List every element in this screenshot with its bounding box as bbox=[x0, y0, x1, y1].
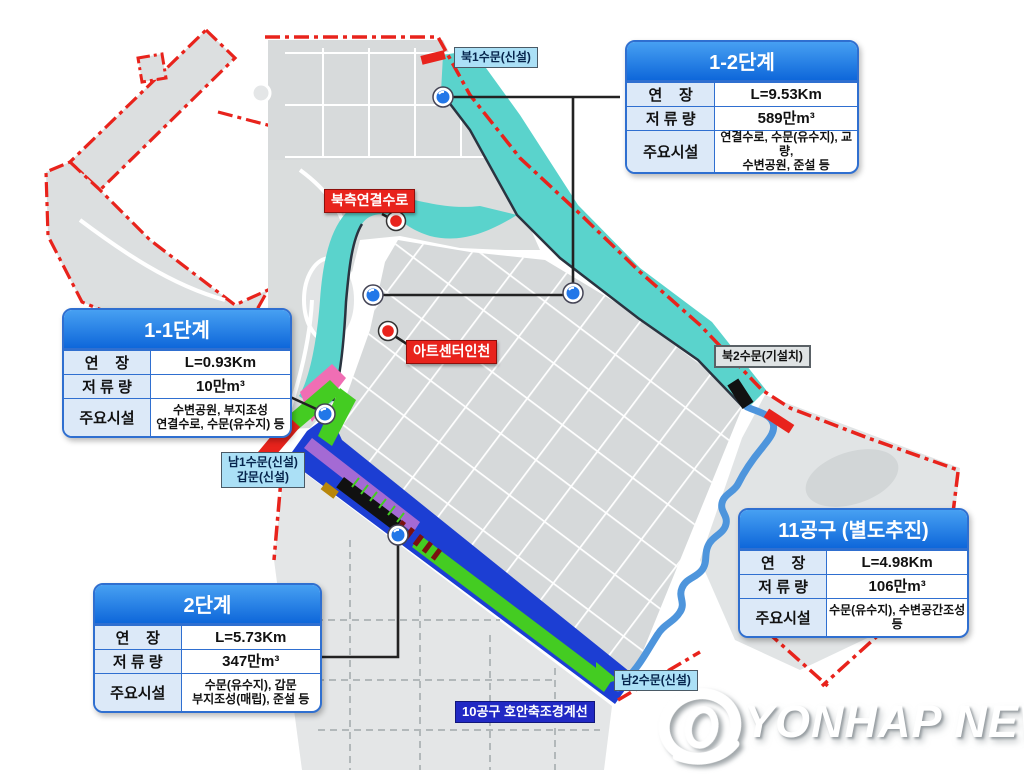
table-phase-2: 2단계 연 장 L=5.73Km 저 류 량 347만m³ 주요시설 수문(유수… bbox=[93, 583, 322, 713]
red-marker-north-channel bbox=[387, 212, 406, 231]
row-value: L=0.93Km bbox=[151, 351, 290, 374]
blue-marker-west bbox=[363, 285, 383, 305]
table-phase-1-2-title: 1-2단계 bbox=[627, 42, 857, 82]
row-value: 10만m³ bbox=[151, 375, 290, 398]
row-label: 저 류 량 bbox=[64, 375, 151, 398]
row-label: 연 장 bbox=[95, 626, 182, 649]
row-value: 수변공원, 부지조성 연결수로, 수문(유수지) 등 bbox=[151, 399, 290, 436]
row-value: 수문(유수지), 갑문 부지조성(매립), 준설 등 bbox=[182, 674, 321, 711]
row-label: 주요시설 bbox=[740, 599, 827, 636]
yonhap-watermark-text: YONHAP NEWS bbox=[744, 696, 1024, 748]
row-value: 연결수로, 수문(유수지), 교량, 수변공원, 준설 등 bbox=[715, 131, 857, 172]
table-phase-2-title: 2단계 bbox=[95, 585, 320, 625]
label-north-gate2: 북2수문(기설치) bbox=[714, 345, 811, 368]
row-label: 주요시설 bbox=[95, 674, 182, 711]
table-district-11: 11공구 (별도추진) 연 장 L=4.98Km 저 류 량 106만m³ 주요… bbox=[738, 508, 969, 638]
table-row: 저 류 량 589만m³ bbox=[627, 106, 857, 130]
row-label: 주요시설 bbox=[627, 131, 715, 172]
blue-marker-north1 bbox=[433, 87, 453, 107]
news-graphic-canvas: 1-2단계 연 장 L=9.53Km 저 류 량 589만m³ 주요시설 연결수… bbox=[0, 0, 1024, 777]
label-south-gate1: 남1수문(신설) 갑문(신설) bbox=[221, 452, 305, 488]
row-value: 589만m³ bbox=[715, 107, 857, 130]
row-value: 수문(유수지), 수변공간조성 등 bbox=[827, 599, 967, 636]
row-label: 연 장 bbox=[740, 551, 827, 574]
row-label: 저 류 량 bbox=[740, 575, 827, 598]
row-value: L=4.98Km bbox=[827, 551, 967, 574]
table-district-11-title: 11공구 (별도추진) bbox=[740, 510, 967, 550]
blue-marker-east bbox=[563, 283, 583, 303]
label-art-center: 아트센터인천 bbox=[406, 340, 497, 364]
row-value: L=9.53Km bbox=[715, 83, 857, 106]
table-phase-1-2: 1-2단계 연 장 L=9.53Km 저 류 량 589만m³ 주요시설 연결수… bbox=[625, 40, 859, 174]
table-row: 주요시설 수문(유수지), 수변공간조성 등 bbox=[740, 598, 967, 636]
row-label: 주요시설 bbox=[64, 399, 151, 436]
row-label: 연 장 bbox=[627, 83, 715, 106]
label-north-gate1: 북1수문(신설) bbox=[454, 47, 538, 68]
table-row: 저 류 량 347만m³ bbox=[95, 649, 320, 673]
blue-marker-junction bbox=[315, 404, 335, 424]
label-north-channel: 북측연결수로 bbox=[324, 189, 415, 213]
yonhap-watermark: YONHAP NEWS bbox=[648, 678, 1024, 777]
label-district10-boundary: 10공구 호안축조경계선 bbox=[455, 701, 595, 723]
table-row: 주요시설 연결수로, 수문(유수지), 교량, 수변공원, 준설 등 bbox=[627, 130, 857, 172]
table-row: 연 장 L=0.93Km bbox=[64, 350, 290, 374]
table-phase-1-1: 1-1단계 연 장 L=0.93Km 저 류 량 10만m³ 주요시설 수변공원… bbox=[62, 308, 292, 438]
table-row: 저 류 량 10만m³ bbox=[64, 374, 290, 398]
table-row: 주요시설 수문(유수지), 갑문 부지조성(매립), 준설 등 bbox=[95, 673, 320, 711]
row-value: 347만m³ bbox=[182, 650, 321, 673]
row-label: 저 류 량 bbox=[627, 107, 715, 130]
table-row: 연 장 L=4.98Km bbox=[740, 550, 967, 574]
row-value: L=5.73Km bbox=[182, 626, 321, 649]
blue-marker-canal bbox=[388, 525, 408, 545]
table-row: 저 류 량 106만m³ bbox=[740, 574, 967, 598]
row-label: 저 류 량 bbox=[95, 650, 182, 673]
red-marker-art-center bbox=[379, 322, 398, 341]
row-value: 106만m³ bbox=[827, 575, 967, 598]
table-row: 연 장 L=5.73Km bbox=[95, 625, 320, 649]
table-row: 연 장 L=9.53Km bbox=[627, 82, 857, 106]
table-row: 주요시설 수변공원, 부지조성 연결수로, 수문(유수지) 등 bbox=[64, 398, 290, 436]
row-label: 연 장 bbox=[64, 351, 151, 374]
table-phase-1-1-title: 1-1단계 bbox=[64, 310, 290, 350]
